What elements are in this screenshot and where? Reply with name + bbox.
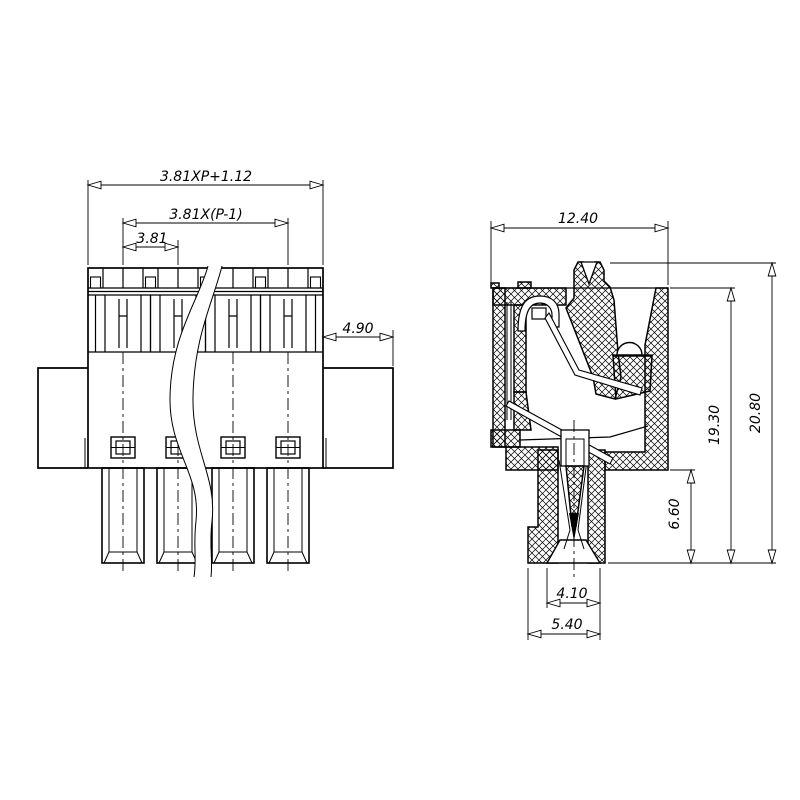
dim-label-span: 3.81X(P-1) <box>169 207 242 223</box>
dim-label-width: 12.40 <box>558 211 598 227</box>
dim-label-tip-opening: 4.10 <box>556 586 587 602</box>
dim-label-pitch: 3.81 <box>136 231 167 247</box>
front-view: 3.81XP+1.12 3.81X(P-1) 3.81 4.90 <box>38 169 393 577</box>
dim-label-overall-height: 20.80 <box>748 393 764 433</box>
dim-label-body-height: 19.30 <box>707 405 723 445</box>
dim-pitch: 3.81 <box>123 231 178 265</box>
drawing-sheet: 3.81XP+1.12 3.81X(P-1) 3.81 4.90 <box>0 0 800 800</box>
front-right-flange <box>323 368 393 468</box>
technical-drawing: 3.81XP+1.12 3.81X(P-1) 3.81 4.90 <box>0 0 800 800</box>
pin-head <box>561 430 589 466</box>
dim-flange-width: 4.90 <box>323 321 393 366</box>
spring-anchor <box>532 308 546 319</box>
dim-label-plug-length: 6.60 <box>667 498 683 529</box>
dim-label-overall: 3.81XP+1.12 <box>160 169 252 185</box>
front-left-flange <box>38 368 88 468</box>
side-view: 12.40 20.80 19.30 6.60 4.10 5.40 <box>491 211 776 640</box>
dim-plug-length: 6.60 <box>667 470 695 563</box>
dim-label-tip-base: 5.40 <box>551 617 582 633</box>
front-latch-slot <box>91 277 101 288</box>
dim-overall-height: 20.80 <box>610 263 776 563</box>
wire-entry-dome <box>617 343 642 356</box>
dim-label-flange: 4.90 <box>342 321 373 337</box>
